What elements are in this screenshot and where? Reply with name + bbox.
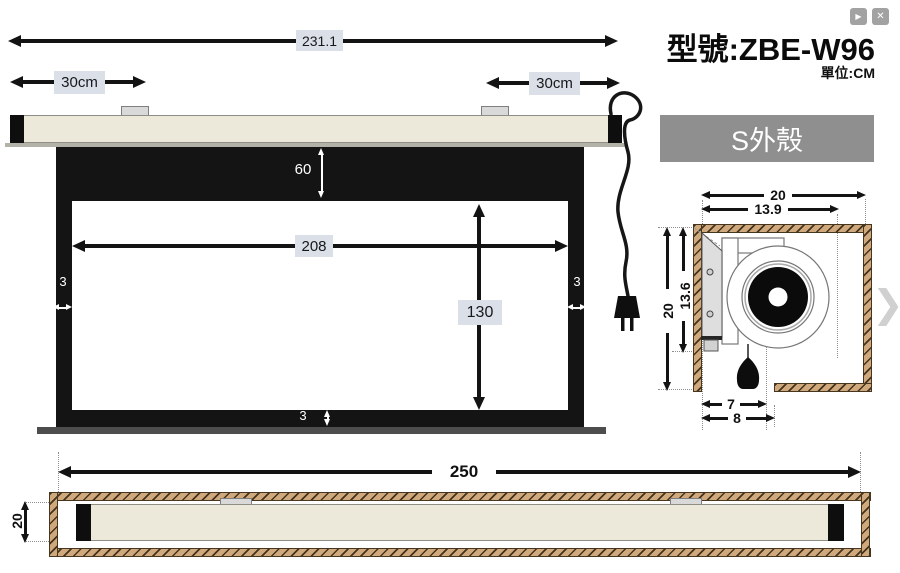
screen-housing [10, 115, 622, 143]
spec-diagram-page: ▶ ✕ 型號:ZBE-W96 單位:CM 231.1 30cm 30cm [0, 0, 900, 573]
casing-left [49, 492, 58, 557]
opening-outer-label: 8 [728, 410, 746, 425]
screen-housing-plan [76, 504, 844, 541]
close-button[interactable]: ✕ [872, 8, 889, 25]
casing-right [861, 492, 870, 557]
left-border-label: 3 [53, 274, 73, 289]
right-bracket-offset-label: 30cm [529, 72, 580, 95]
roller-hub [769, 288, 788, 307]
top-drop-label: 60 [290, 161, 316, 177]
close-icon: ✕ [876, 11, 884, 22]
overall-width-label: 231.1 [296, 30, 343, 51]
power-plug [614, 296, 640, 318]
bottom-border-label: 3 [296, 408, 310, 423]
casing-top [49, 492, 871, 501]
pull-weight [737, 357, 759, 389]
left-bracket-offset-label: 30cm [54, 71, 105, 94]
bracket-foot [704, 340, 718, 351]
wall-bracket [702, 233, 722, 338]
power-cord [595, 80, 651, 336]
weight-bar [37, 427, 606, 434]
housing-end-cap-left [10, 115, 24, 143]
housing-cap-right-plan [828, 504, 844, 541]
play-button[interactable]: ▶ [850, 8, 867, 25]
right-border-label: 3 [567, 274, 587, 289]
roller-mechanism [690, 225, 880, 397]
section-title-banner: S外殼 [660, 115, 874, 162]
viewing-height-label: 130 [458, 300, 502, 325]
play-icon: ▶ [855, 12, 861, 21]
screw-bottom [707, 311, 713, 317]
housing-cap-left-plan [76, 504, 91, 541]
case-inner-width-label: 13.9 [748, 201, 788, 216]
next-image-chevron-icon[interactable]: ❯ [872, 282, 900, 327]
case-outer-height-label: 20 [660, 289, 676, 333]
casing-bottom [49, 548, 871, 557]
screw-top [707, 269, 713, 275]
viewing-width-label: 208 [295, 235, 333, 257]
case-overall-width-label: 250 [432, 461, 496, 483]
case-height-label: 20 [9, 506, 25, 536]
case-inner-height-label: 13.6 [677, 271, 693, 321]
